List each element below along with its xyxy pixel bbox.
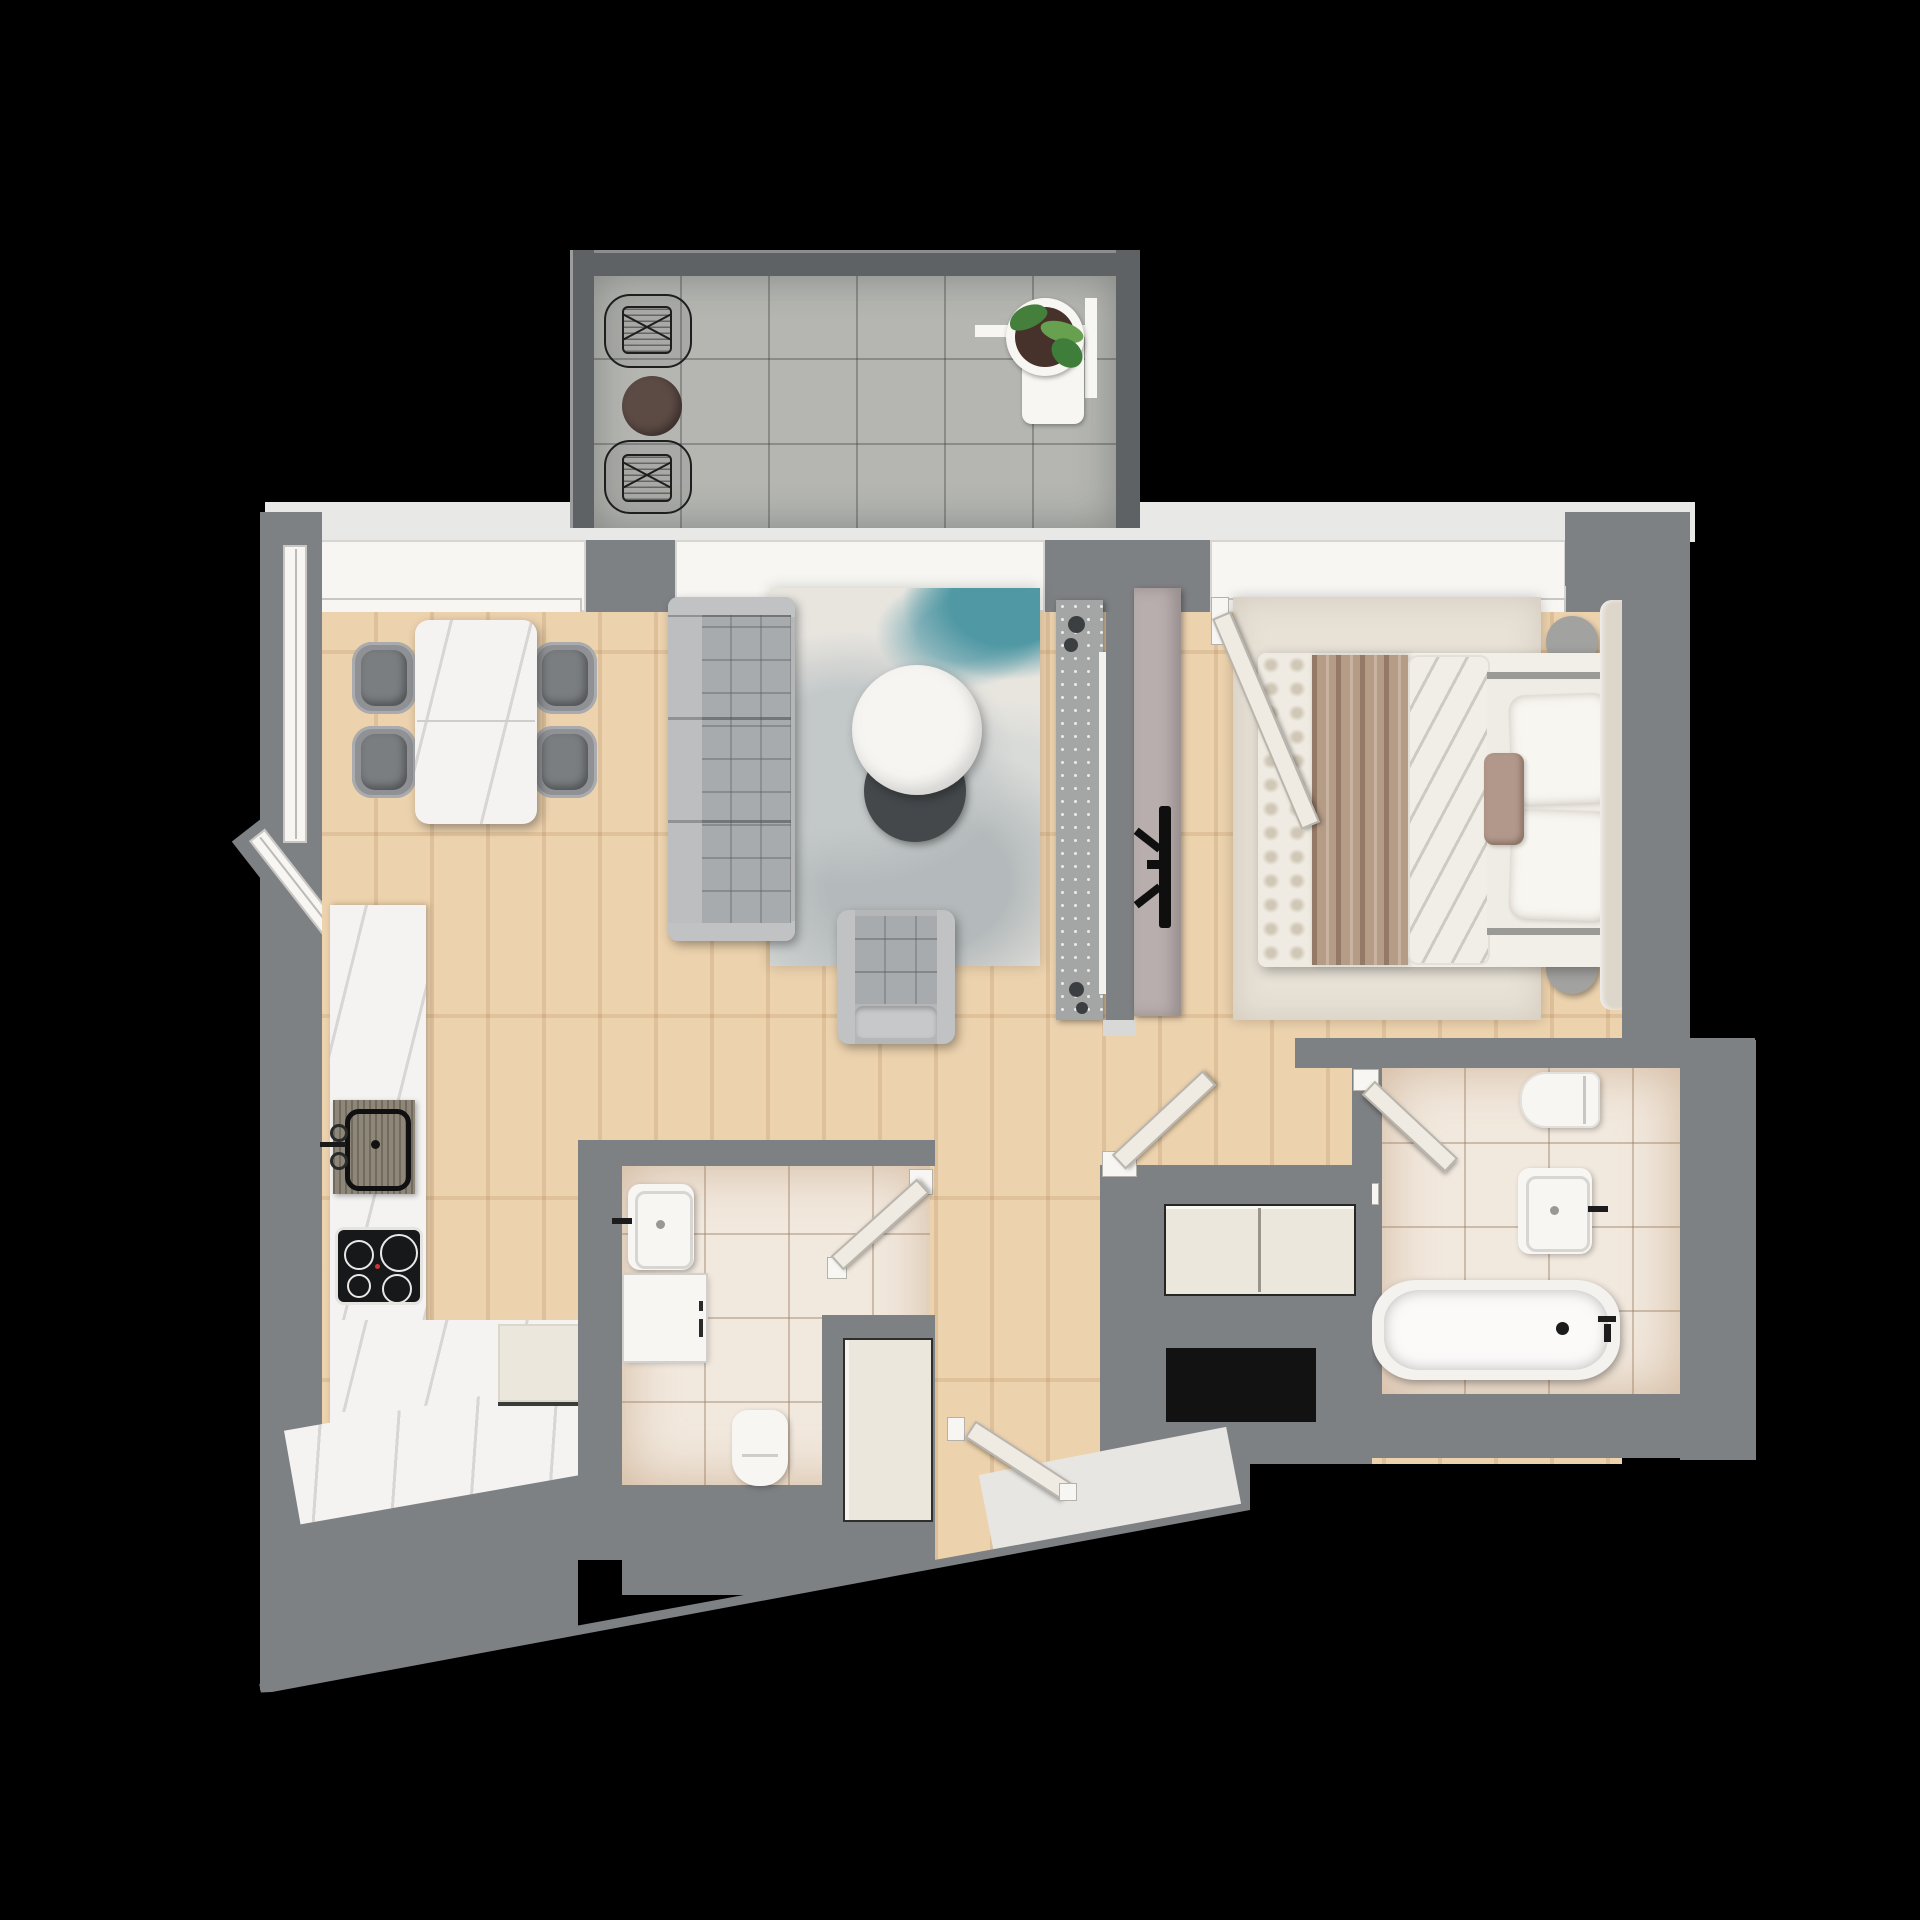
- basin-drain: [1550, 1206, 1559, 1215]
- media-panel-knob: [1076, 1002, 1088, 1014]
- kitchen-sink-board: [333, 1100, 415, 1194]
- balcony-wire-chair: [604, 440, 692, 514]
- planter-pot: [1006, 298, 1084, 376]
- wall-right-bedroom: [1622, 585, 1690, 1070]
- media-panel: [1056, 600, 1103, 1020]
- faucet-handle: [330, 1152, 348, 1170]
- sofa: [668, 597, 795, 941]
- bathtub-spout-icon: [1604, 1324, 1611, 1342]
- wall-niche: [1166, 1348, 1316, 1422]
- kitchen-sink: [345, 1109, 411, 1191]
- armchair-arm: [937, 910, 955, 1044]
- throw-blanket: [1312, 655, 1408, 965]
- tv-stem: [1147, 860, 1161, 869]
- balcony-wall-right: [1116, 250, 1140, 528]
- washer-controls: [699, 1301, 703, 1311]
- sofa-armrest: [668, 597, 795, 617]
- bathroom-toilet: [732, 1410, 788, 1486]
- entry-door-frame: [948, 1418, 964, 1440]
- bed-rail: [1487, 928, 1612, 935]
- washer-controls: [699, 1319, 703, 1337]
- sofa-armrest: [668, 921, 795, 941]
- faucet-handle: [330, 1124, 348, 1142]
- sofa-back: [668, 615, 702, 923]
- balcony-wall-top: [570, 250, 1140, 276]
- dining-chair-seat: [542, 734, 588, 790]
- dining-chair: [533, 642, 597, 714]
- armchair-arm: [837, 910, 855, 1044]
- washing-machine: [624, 1275, 706, 1361]
- wall-bedroom-divider: [1106, 612, 1134, 1034]
- dining-chair: [352, 726, 416, 798]
- wall-bath-bottom: [1345, 1394, 1755, 1458]
- cooktop-burner: [382, 1274, 412, 1304]
- floor-plan: [0, 0, 1920, 1920]
- sink-drain: [371, 1140, 380, 1149]
- sofa-seats: [702, 615, 791, 923]
- toilet-seat-line: [742, 1454, 778, 1457]
- armchair: [837, 910, 955, 1044]
- wall-end-cap: [1103, 1020, 1136, 1036]
- armchair-seat: [855, 916, 937, 1004]
- balcony-round-table: [622, 376, 682, 436]
- hall-storage-cabinet: [1166, 1206, 1354, 1294]
- ensuite-faucet-icon: [1588, 1206, 1608, 1212]
- dining-table-seam: [417, 720, 535, 722]
- faucet-icon: [320, 1142, 346, 1147]
- chevron-duvet: [1408, 655, 1490, 965]
- bathtub-spout-icon: [1598, 1316, 1616, 1322]
- wall-bath-left: [578, 1140, 622, 1560]
- cooktop-indicator: [375, 1264, 380, 1269]
- ensuite-basin: [1518, 1168, 1592, 1254]
- basin-bowl: [635, 1191, 693, 1269]
- balcony-wall-left: [570, 250, 594, 528]
- dining-table: [415, 620, 537, 824]
- dining-chair-seat: [361, 734, 407, 790]
- bathtub-basin: [1384, 1290, 1608, 1370]
- cooktop-burner: [344, 1240, 374, 1270]
- dining-chair: [533, 726, 597, 798]
- entry-door-frame: [1060, 1484, 1076, 1500]
- basin-drain: [656, 1220, 665, 1229]
- wall-bath-top: [578, 1140, 935, 1166]
- dining-chair-seat: [542, 650, 588, 706]
- coffee-table-white: [852, 665, 982, 795]
- basin-bowl: [1526, 1176, 1590, 1252]
- dining-left-window: [283, 545, 307, 843]
- plant-stand-bar: [1085, 298, 1097, 398]
- balcony-wire-chair: [604, 294, 692, 368]
- tv-sideboard: [1134, 588, 1181, 1016]
- bathtub: [1372, 1280, 1620, 1380]
- media-panel-knob: [1068, 616, 1085, 633]
- bathtub-drain: [1556, 1322, 1569, 1335]
- cooktop-burner: [380, 1234, 418, 1272]
- wall-corner-top-right: [1565, 512, 1690, 586]
- media-panel-knob: [1064, 638, 1078, 652]
- bed-rail: [1487, 672, 1612, 679]
- bathroom-door-panel: [845, 1340, 931, 1520]
- media-panel-knob: [1069, 982, 1084, 997]
- dining-chair-seat: [361, 650, 407, 706]
- cabinet-divider: [1258, 1208, 1261, 1292]
- cooktop-burner: [347, 1274, 371, 1298]
- induction-cooktop: [338, 1230, 420, 1302]
- built-in-appliance: [498, 1324, 582, 1406]
- wire-chair-seat: [622, 306, 672, 354]
- exterior-mask: [1250, 1464, 1920, 1920]
- bathroom-faucet-icon: [612, 1218, 632, 1224]
- armchair-cushion: [855, 1006, 937, 1038]
- toilet-tank-line: [1583, 1076, 1586, 1124]
- bathroom-basin: [628, 1184, 694, 1270]
- accent-pillow: [1484, 753, 1524, 845]
- dining-chair: [352, 642, 416, 714]
- wire-chair-seat: [622, 454, 672, 502]
- ensuite-toilet: [1520, 1072, 1600, 1128]
